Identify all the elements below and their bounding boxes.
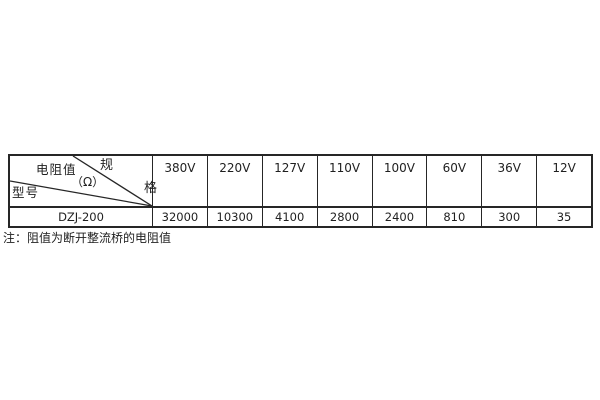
value-cell-220v: 10300 (207, 208, 262, 226)
column-header-110v: 110V (317, 156, 372, 206)
document-page: 规 格 电阻值 （Ω） 型号 380V 220V 127V 110V 100V … (0, 0, 600, 400)
table-data-row: DZJ-200 32000 10300 4100 2800 2400 810 3… (10, 206, 591, 226)
corner-label-ohm-unit: （Ω） (71, 176, 104, 188)
column-header-60v: 60V (426, 156, 481, 206)
column-header-100v: 100V (372, 156, 427, 206)
table-header-row: 规 格 电阻值 （Ω） 型号 380V 220V 127V 110V 100V … (10, 156, 591, 206)
value-cell-110v: 2800 (317, 208, 372, 226)
column-header-127v: 127V (262, 156, 317, 206)
value-cell-127v: 4100 (262, 208, 317, 226)
column-header-380v: 380V (152, 156, 207, 206)
corner-label-spec-char2: 格 (144, 182, 157, 195)
corner-label-model: 型号 (12, 187, 39, 200)
value-cell-60v: 810 (426, 208, 481, 226)
corner-label-spec-char1: 规 (100, 159, 113, 172)
value-cell-100v: 2400 (372, 208, 427, 226)
footnote-text: 注：阻值为断开整流桥的电阻值 (3, 229, 171, 246)
value-cell-36v: 300 (481, 208, 536, 226)
value-cell-380v: 32000 (152, 208, 207, 226)
column-header-12v: 12V (536, 156, 591, 206)
column-header-220v: 220V (207, 156, 262, 206)
model-name-cell: DZJ-200 (10, 208, 152, 226)
diagonal-corner-cell: 规 格 电阻值 （Ω） 型号 (10, 156, 152, 206)
column-header-36v: 36V (481, 156, 536, 206)
resistance-spec-table: 规 格 电阻值 （Ω） 型号 380V 220V 127V 110V 100V … (8, 154, 593, 228)
value-cell-12v: 35 (536, 208, 591, 226)
